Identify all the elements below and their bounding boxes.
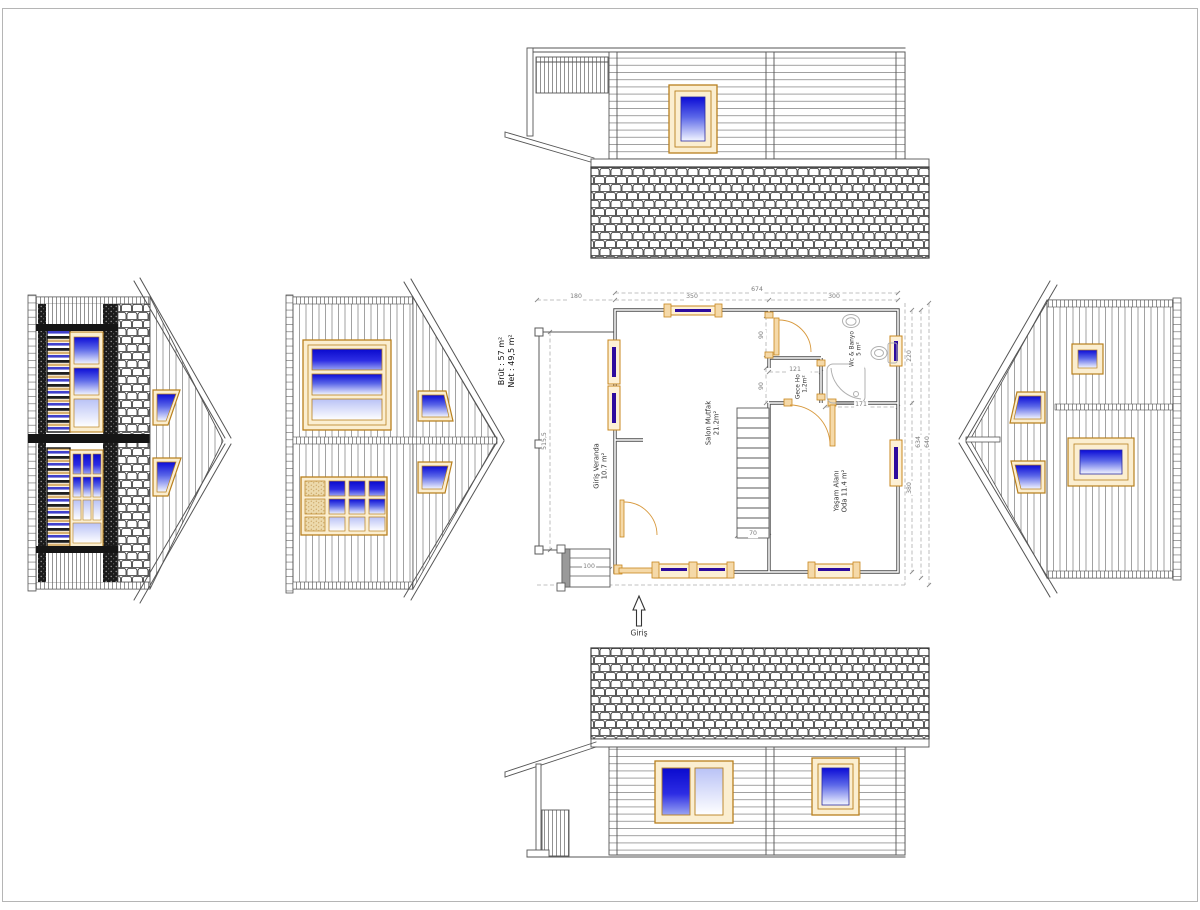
- dim-salon-width: 350: [685, 293, 699, 301]
- room-area: Oda 11.4 m²: [841, 470, 849, 513]
- plan-window-top: [664, 304, 722, 317]
- toilet: [871, 347, 887, 360]
- area-summary: Brüt : 57 m² Net : 49,5 m²: [497, 333, 517, 388]
- window-grid: [70, 450, 103, 548]
- staircase: [737, 408, 769, 538]
- window-stacked: [70, 332, 103, 432]
- porch-post: [527, 48, 533, 136]
- dim-depth-outer: 640: [924, 435, 932, 449]
- dim-hall-width: 121: [788, 366, 802, 374]
- log-wall: [611, 52, 905, 159]
- plan-window-bath: [890, 336, 902, 366]
- window-rect: [1068, 438, 1134, 486]
- dim-steps-width: 100: [582, 563, 596, 571]
- porch-post: [536, 764, 541, 856]
- room-name: Giriş Veranda: [593, 443, 601, 489]
- drawing-sheet: Brüt : 57 m² Net : 49,5 m² Giriş Veranda…: [0, 0, 1200, 910]
- plan-window-living: [890, 440, 902, 486]
- area-net: Net : 49,5 m²: [507, 334, 517, 387]
- dim-living-depth: 380: [906, 481, 914, 495]
- area-brut: Brüt : 57 m²: [497, 334, 507, 387]
- elevation-left-gable: [28, 278, 231, 603]
- roof-tiles: [591, 648, 929, 739]
- room-label-bath: Wc & Banyo 5 m²: [850, 330, 865, 368]
- dim-right-width: 300: [827, 293, 841, 301]
- louver-panel: [47, 330, 70, 432]
- plan-window-left-1: [608, 340, 620, 384]
- dimension-lines: [537, 293, 929, 585]
- entrance-label: Giriş: [630, 628, 649, 637]
- room-label-living: Yaşam Alanı Oda 11.4 m²: [833, 469, 850, 514]
- room-area: 21.2m²: [713, 401, 721, 445]
- room-label-salon: Salon Mutfak 21.2m²: [705, 400, 722, 446]
- dim-door-bottom: 90: [758, 381, 766, 391]
- elevation-front-side: [505, 648, 929, 857]
- dim-total-width: 674: [750, 286, 764, 294]
- dim-veranda-depth: 515,5: [541, 431, 549, 451]
- dim-veranda-width: 180: [569, 293, 583, 301]
- room-area: 10.7 m²: [601, 443, 609, 489]
- door-hall: [765, 312, 811, 358]
- plan-window-bottom-single: [808, 562, 860, 578]
- window-double: [655, 761, 733, 823]
- dim-bath-width: 171: [854, 401, 868, 409]
- entrance-arrow-icon: [633, 596, 645, 626]
- canopy-edge: [505, 132, 594, 163]
- elevation-right-gable: [959, 281, 1181, 597]
- room-name: Yaşam Alanı: [833, 470, 841, 513]
- room-area: 1,2m²: [803, 369, 810, 399]
- room-name: Salon Mutfak: [705, 401, 713, 445]
- gable-wall: [150, 297, 223, 589]
- dim-bath-depth: 220: [906, 349, 914, 363]
- window-triple: [303, 340, 391, 430]
- room-area: 5 m²: [857, 331, 864, 367]
- dim-depth-inner: 634: [915, 435, 923, 449]
- dim-door-top: 90: [758, 330, 766, 340]
- room-label-veranda: Giriş Veranda 10.7 m²: [593, 442, 610, 490]
- window-single: [812, 758, 859, 815]
- dimension-ticks: [535, 291, 931, 587]
- plan-window-left-2: [608, 386, 620, 430]
- shower: [827, 364, 865, 403]
- elevation-front-gable: [286, 279, 504, 600]
- window-rear: [669, 85, 717, 153]
- door-living: [784, 399, 836, 446]
- roof-tiles: [591, 167, 929, 258]
- window-grid: [301, 477, 387, 535]
- window-small-square: [1072, 344, 1103, 374]
- elevation-rear: [505, 48, 929, 258]
- dim-stairs-width: 70: [748, 530, 758, 538]
- porch-railing: [542, 810, 569, 856]
- canopy-edge: [505, 742, 596, 777]
- louver-panel: [47, 448, 70, 548]
- plan-window-bottom-double: [652, 562, 734, 578]
